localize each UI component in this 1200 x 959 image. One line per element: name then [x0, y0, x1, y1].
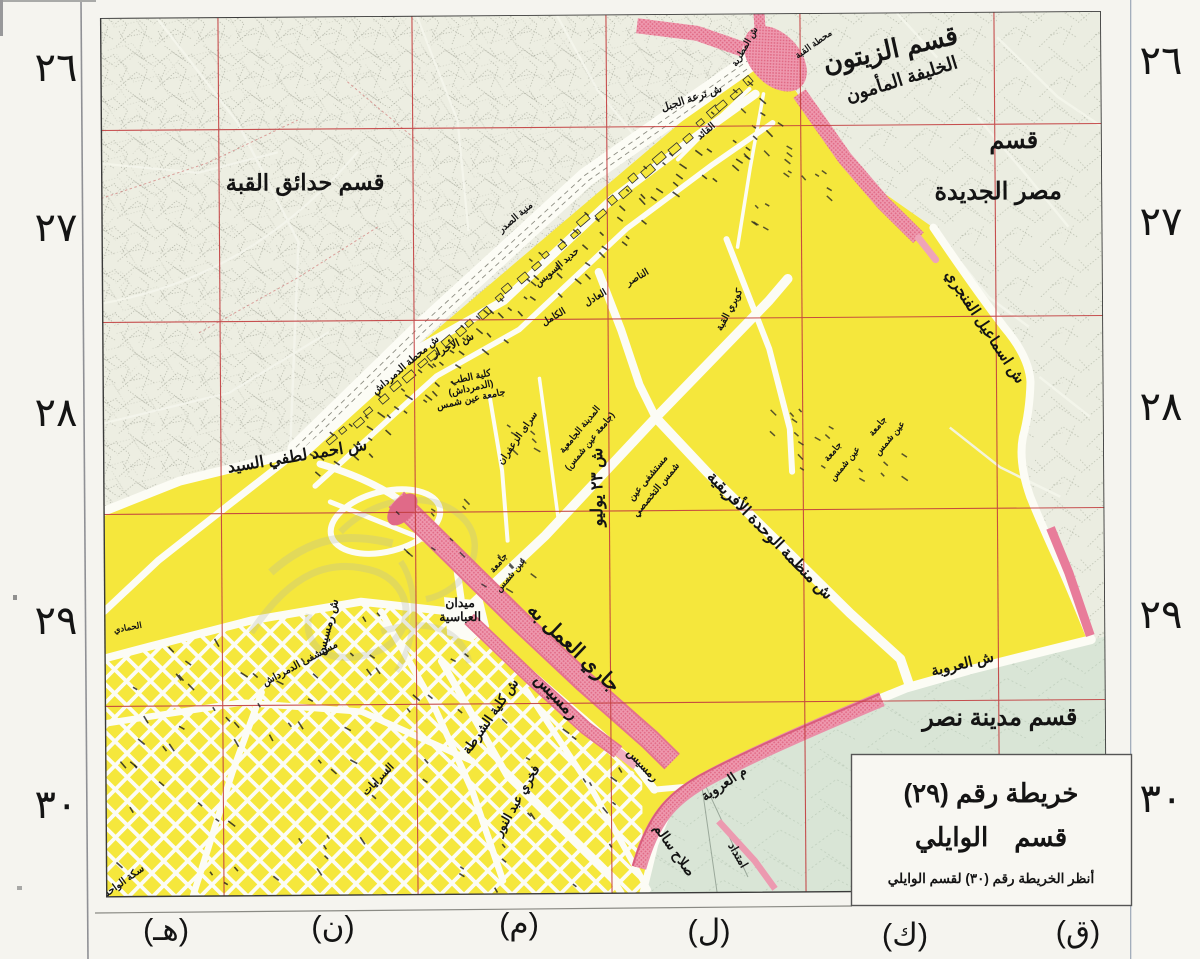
svg-text:ش ٢٣ يوليو: ش ٢٣ يوليو	[588, 448, 608, 529]
svg-text:٢٩: ٢٩	[1140, 593, 1183, 637]
svg-text:(م): (م)	[499, 906, 539, 942]
svg-text:ميدان: ميدان	[445, 596, 475, 610]
svg-text:٣٠: ٣٠	[35, 783, 78, 827]
svg-text:العباسية: العباسية	[439, 610, 481, 624]
svg-text:(ن): (ن)	[311, 909, 354, 944]
svg-text:٢٩: ٢٩	[35, 599, 78, 643]
svg-text:٢٧: ٢٧	[1140, 200, 1183, 244]
svg-text:٢٨: ٢٨	[1140, 385, 1183, 429]
svg-text:خريطة رقم (٢٩): خريطة رقم (٢٩)	[904, 778, 1079, 809]
svg-text:٢٧: ٢٧	[35, 206, 78, 250]
svg-text:أنظر الخريطة رقم (٣٠) لقسم الو: أنظر الخريطة رقم (٣٠) لقسم الوايلي	[888, 868, 1095, 887]
svg-text:مصر الجديدة: مصر الجديدة	[934, 178, 1062, 207]
svg-text:قسم مدينة نصر: قسم مدينة نصر	[920, 704, 1077, 733]
svg-text:(هـ): (هـ)	[143, 912, 189, 947]
svg-text:قسم حدائق القبة: قسم حدائق القبة	[226, 170, 385, 198]
svg-text:قسم الوايلي: قسم الوايلي	[915, 822, 1067, 853]
svg-text:٢٦: ٢٦	[1140, 39, 1183, 83]
svg-text:(ق): (ق)	[1056, 914, 1101, 949]
svg-text:(ك): (ك)	[882, 917, 928, 952]
svg-text:قسم: قسم	[989, 127, 1038, 155]
svg-text:٢٨: ٢٨	[35, 391, 78, 435]
svg-text:٢٦: ٢٦	[35, 46, 78, 90]
svg-text:(ل): (ل)	[687, 913, 730, 948]
svg-text:٣٠: ٣٠	[1140, 777, 1183, 821]
